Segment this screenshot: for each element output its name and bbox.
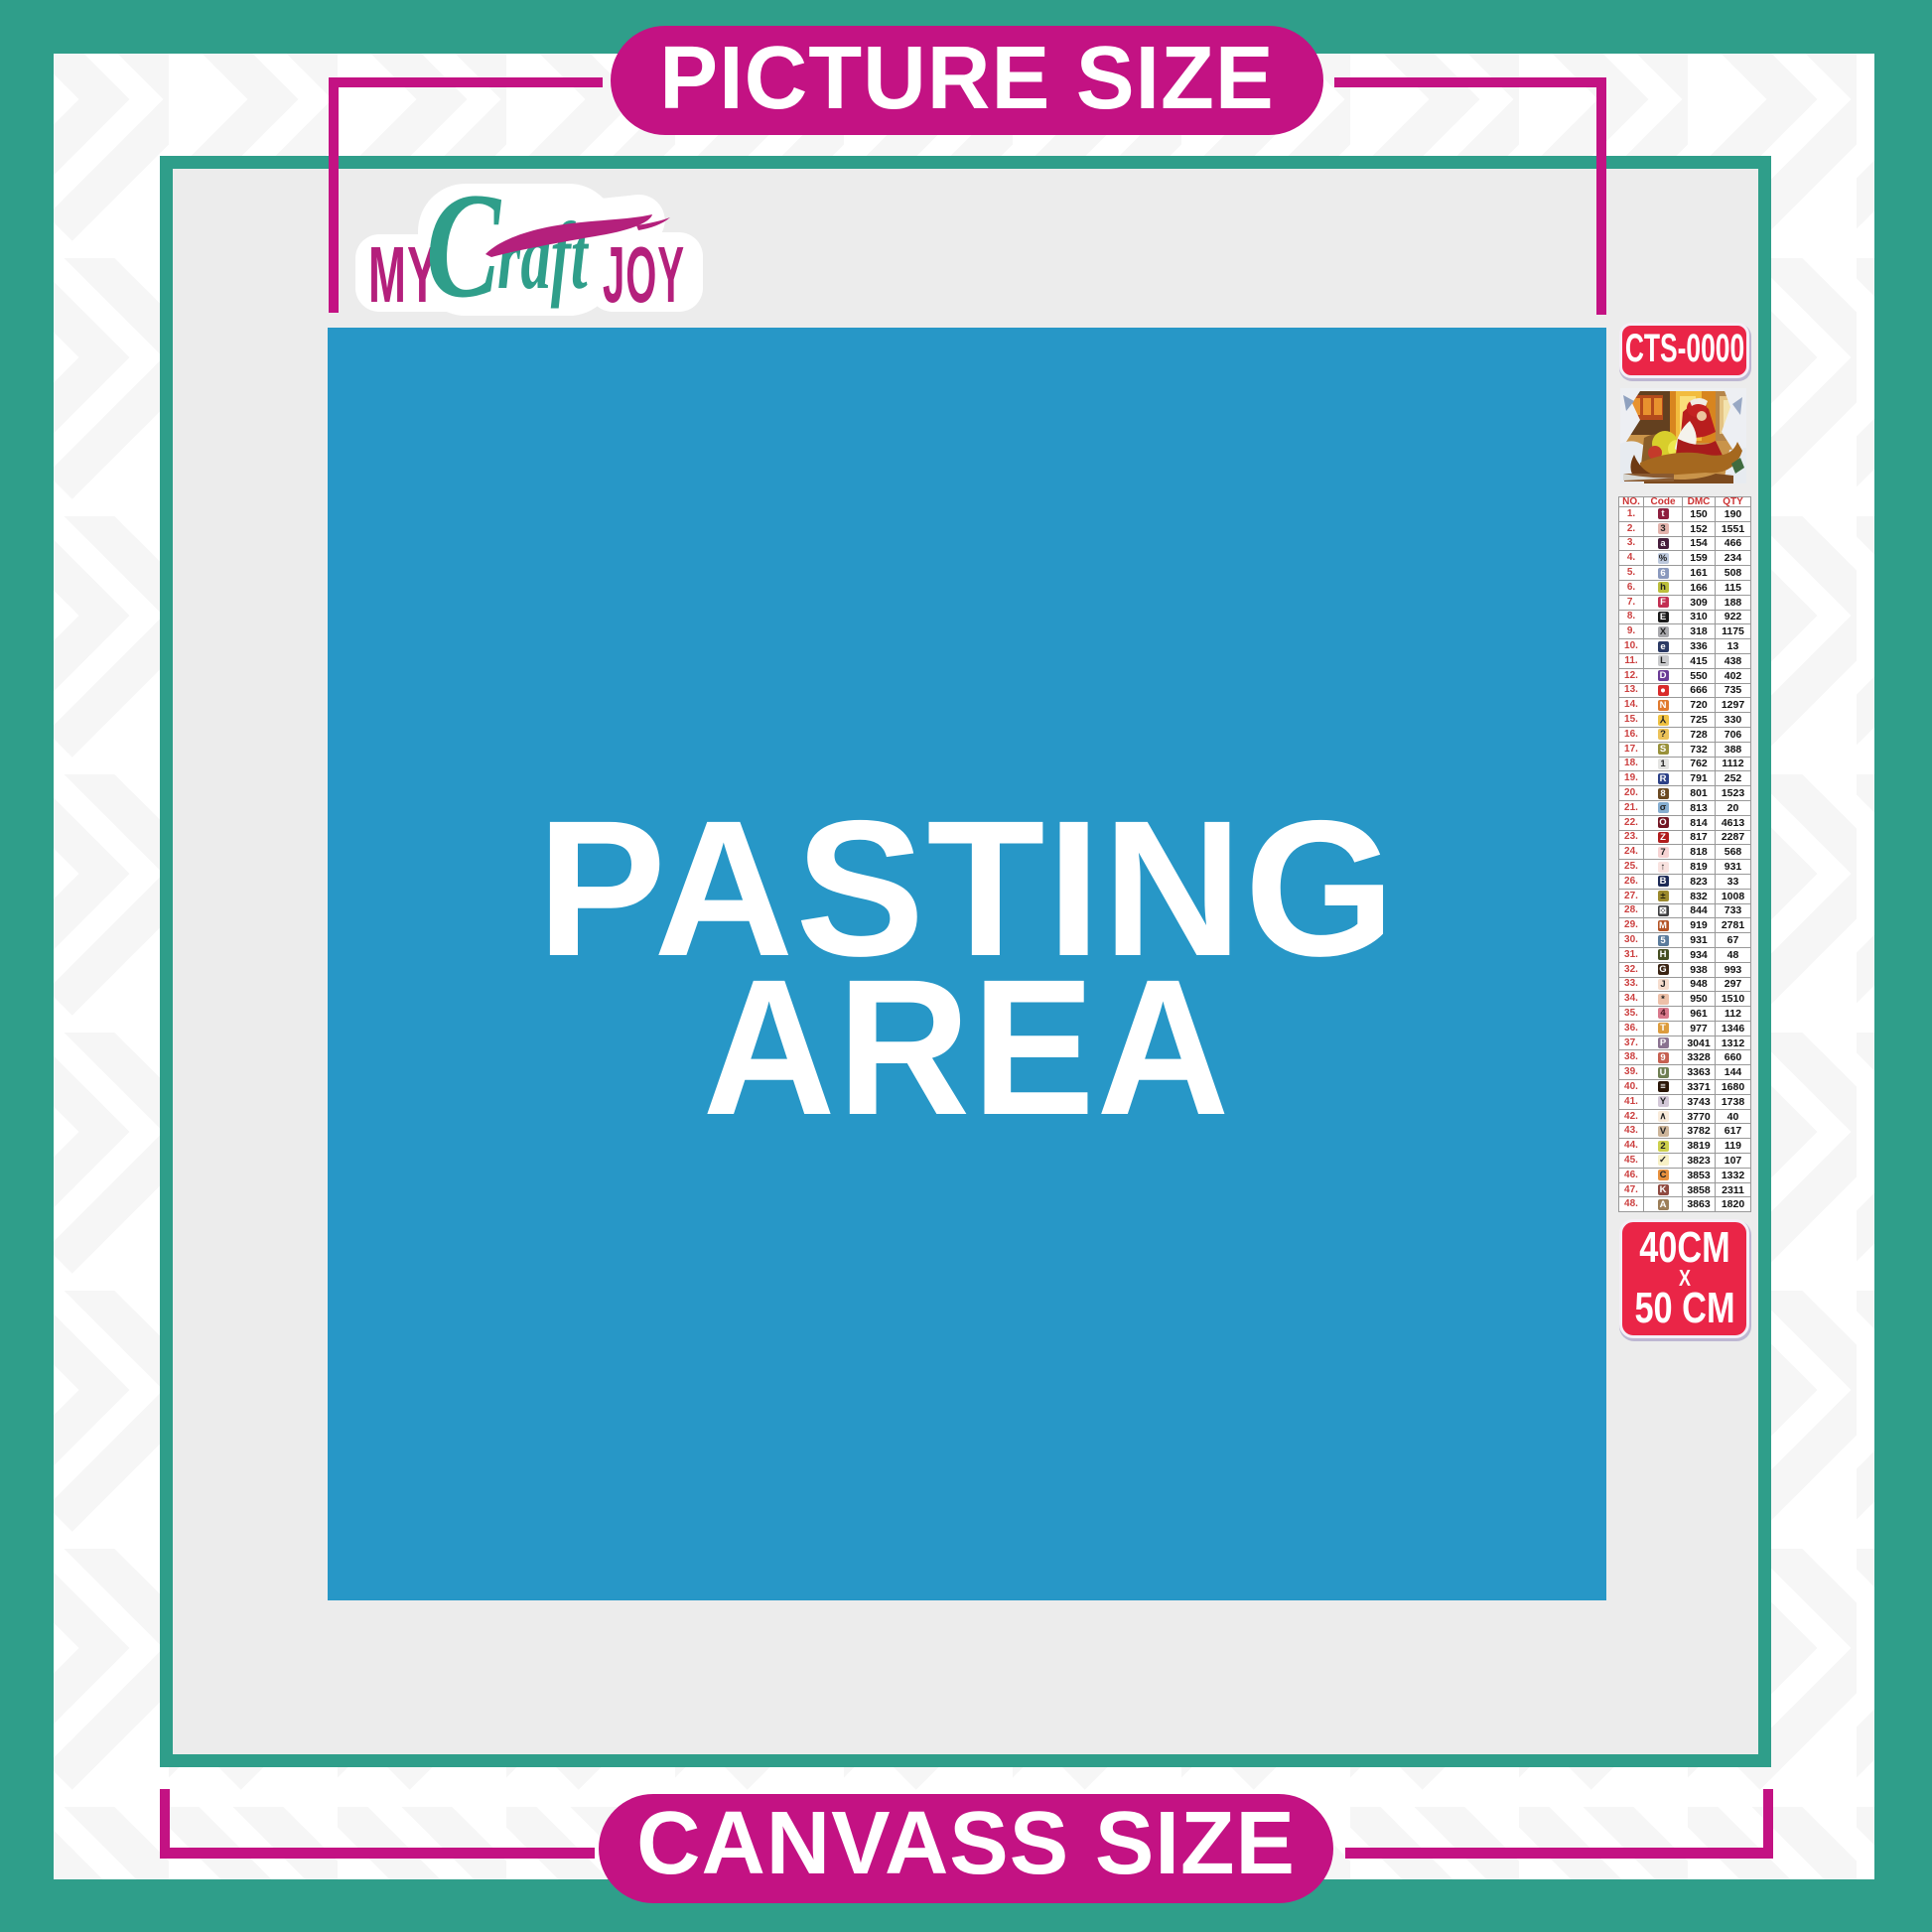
svg-text:JOY: JOY [603,231,685,320]
svg-text:C: C [426,179,502,320]
svg-text:raft: raft [497,205,590,309]
